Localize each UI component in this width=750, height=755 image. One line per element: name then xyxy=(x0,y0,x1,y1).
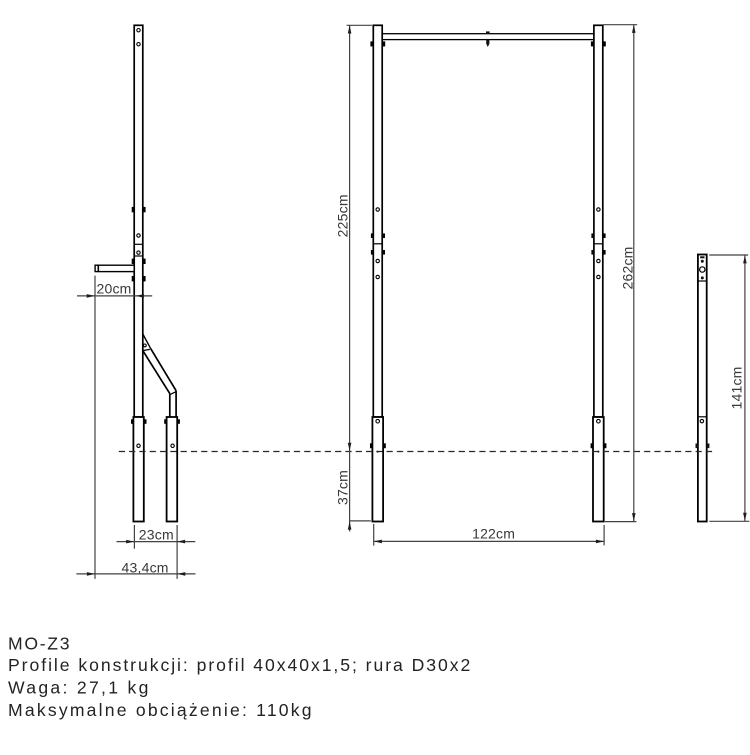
svg-text:Profile konstrukcji: profil 40: Profile konstrukcji: profil 40x40x1,5; r… xyxy=(8,655,472,675)
svg-text:43,4cm: 43,4cm xyxy=(122,560,169,576)
svg-text:37cm: 37cm xyxy=(335,470,351,505)
svg-text:Waga: 27,1 kg: Waga: 27,1 kg xyxy=(8,678,151,698)
svg-text:262cm: 262cm xyxy=(619,246,635,289)
svg-text:Maksymalne obciążenie: 110kg: Maksymalne obciążenie: 110kg xyxy=(8,700,314,720)
svg-text:122cm: 122cm xyxy=(472,525,515,541)
svg-text:141cm: 141cm xyxy=(729,366,745,409)
svg-text:20cm: 20cm xyxy=(96,281,131,297)
svg-text:23cm: 23cm xyxy=(139,526,174,542)
svg-text:225cm: 225cm xyxy=(334,194,350,237)
svg-text:MO-Z3: MO-Z3 xyxy=(8,633,71,653)
